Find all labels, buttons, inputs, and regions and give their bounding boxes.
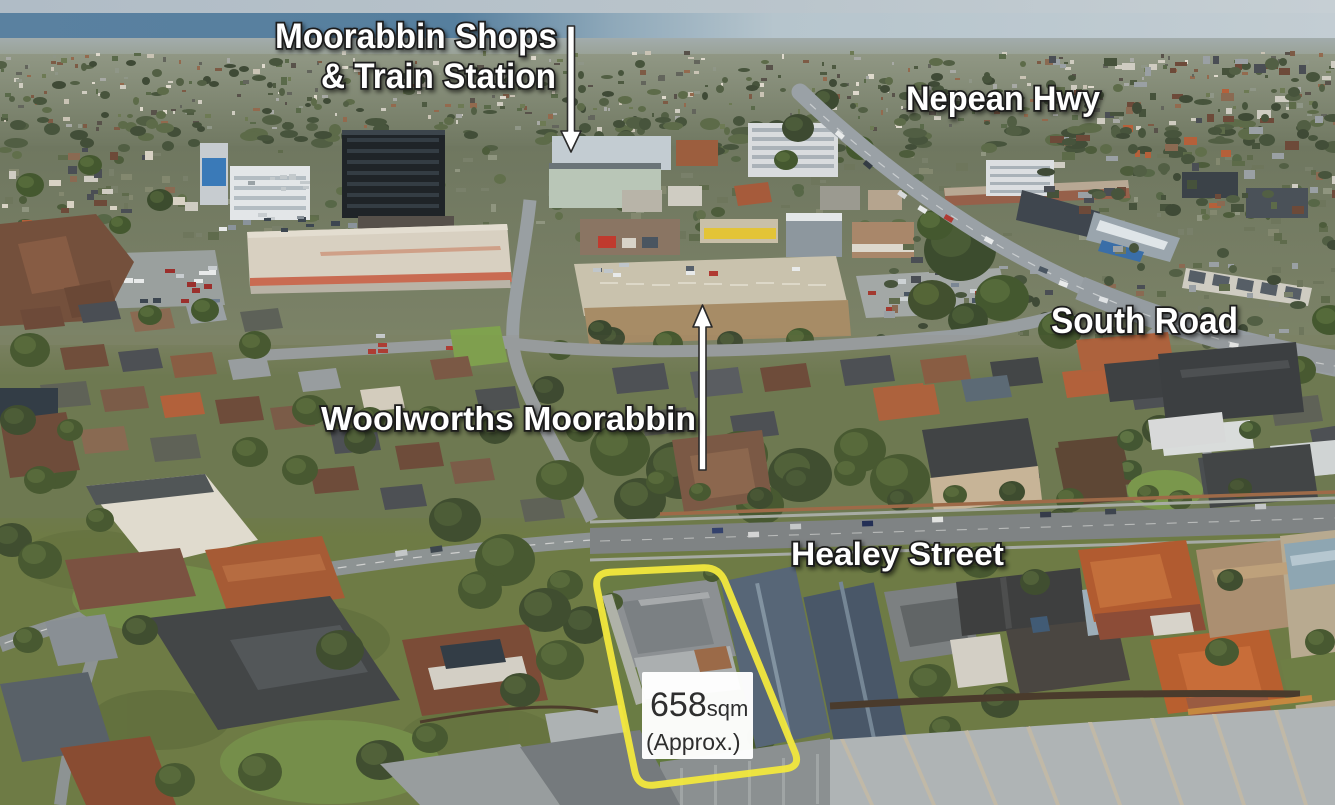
svg-text:(Approx.): (Approx.) xyxy=(646,729,741,755)
svg-text:Woolworths Moorabbin: Woolworths Moorabbin xyxy=(321,400,696,437)
svg-text:& Train Station: & Train Station xyxy=(321,57,556,96)
svg-text:South Road: South Road xyxy=(1051,300,1238,341)
svg-text:Nepean Hwy: Nepean Hwy xyxy=(906,80,1100,118)
svg-text:Healey Street: Healey Street xyxy=(791,536,1004,572)
svg-text:Moorabbin Shops: Moorabbin Shops xyxy=(275,17,557,56)
